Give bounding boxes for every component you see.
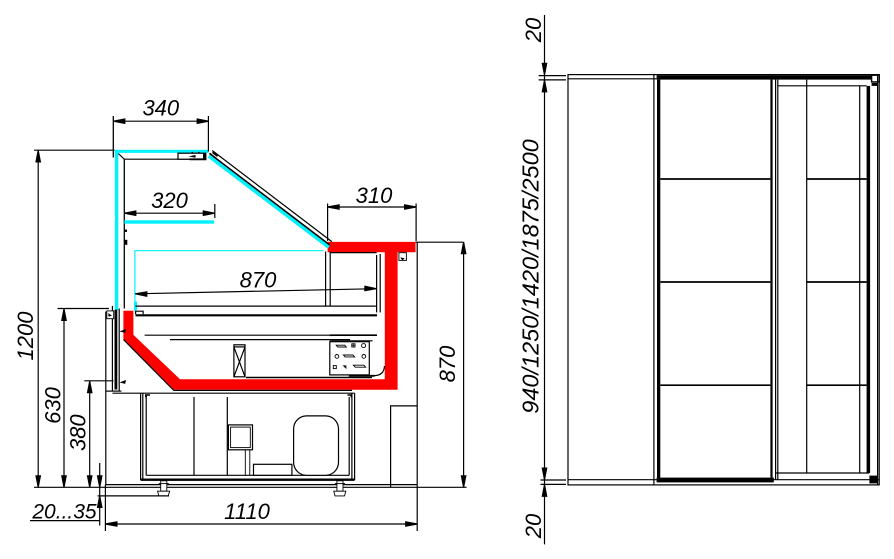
svg-text:940/1250/1420/1875/2500: 940/1250/1420/1875/2500 bbox=[518, 139, 544, 413]
svg-text:1200: 1200 bbox=[13, 311, 38, 361]
svg-text:630: 630 bbox=[41, 386, 66, 423]
svg-text:870: 870 bbox=[435, 345, 460, 382]
svg-text:20...35: 20...35 bbox=[31, 501, 97, 524]
svg-text:310: 310 bbox=[356, 183, 393, 208]
svg-text:20: 20 bbox=[521, 17, 546, 43]
svg-text:340: 340 bbox=[142, 96, 179, 121]
svg-text:1110: 1110 bbox=[224, 499, 270, 524]
svg-text:20: 20 bbox=[521, 513, 546, 539]
svg-text:380: 380 bbox=[66, 414, 91, 451]
svg-text:320: 320 bbox=[151, 188, 188, 213]
svg-text:870: 870 bbox=[240, 268, 277, 293]
